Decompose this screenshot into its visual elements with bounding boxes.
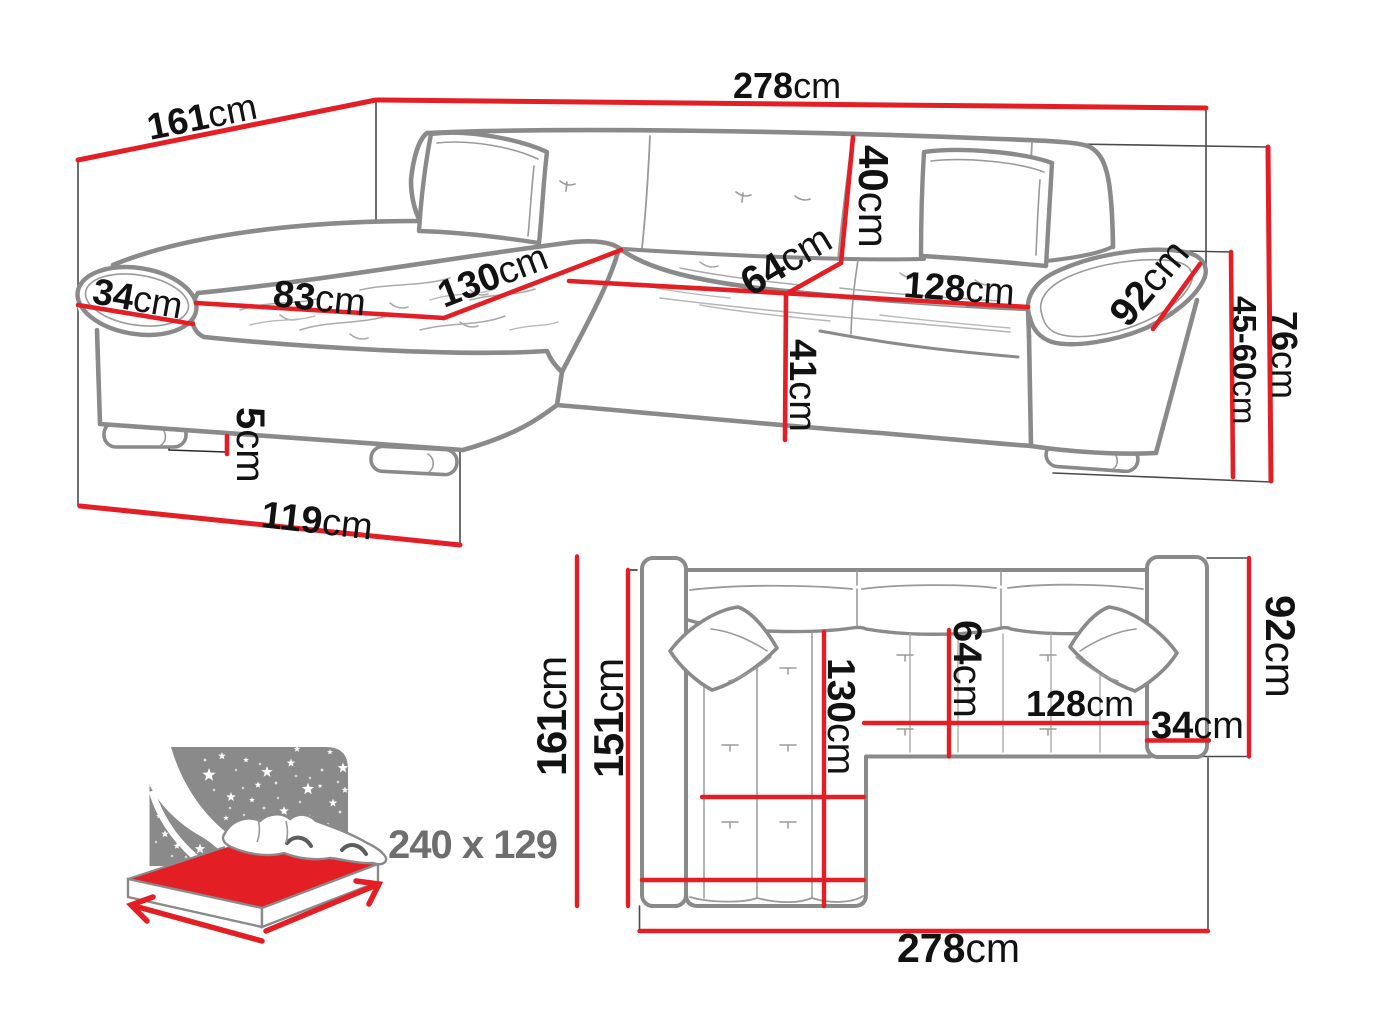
svg-text:5cm: 5cm — [228, 407, 272, 483]
svg-text:278cm: 278cm — [897, 925, 1020, 971]
svg-text:92cm: 92cm — [1257, 595, 1304, 698]
svg-text:76cm: 76cm — [1264, 311, 1305, 399]
svg-text:34cm: 34cm — [1151, 705, 1244, 747]
svg-text:278cm: 278cm — [733, 65, 841, 106]
svg-text:161cm: 161cm — [528, 657, 575, 776]
svg-text:240 x 129: 240 x 129 — [388, 823, 557, 867]
svg-text:41cm: 41cm — [781, 339, 823, 432]
svg-text:128cm: 128cm — [1026, 683, 1134, 724]
svg-text:128cm: 128cm — [902, 264, 1016, 313]
svg-text:45-60cm: 45-60cm — [1226, 296, 1263, 424]
svg-text:151cm: 151cm — [585, 659, 632, 778]
svg-text:64cm: 64cm — [945, 620, 989, 718]
svg-text:40cm: 40cm — [850, 145, 897, 248]
svg-text:130cm: 130cm — [819, 658, 862, 775]
